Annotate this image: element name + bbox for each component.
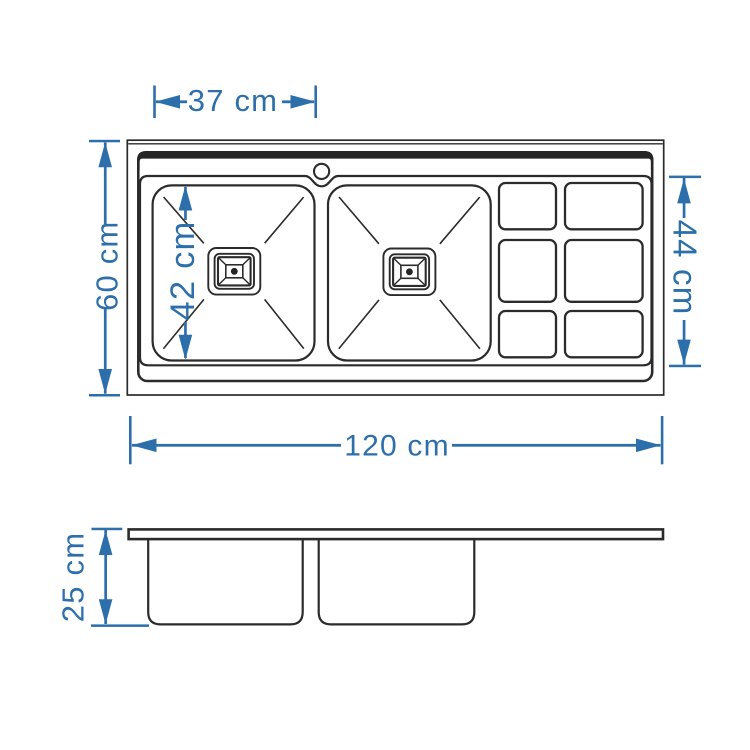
svg-text:120 cm: 120 cm	[344, 429, 450, 462]
svg-text:44 cm: 44 cm	[667, 220, 704, 316]
svg-text:60 cm: 60 cm	[89, 221, 124, 311]
svg-text:25 cm: 25 cm	[56, 532, 91, 622]
svg-text:37 cm: 37 cm	[188, 83, 278, 118]
svg-text:42 cm: 42 cm	[164, 221, 202, 321]
